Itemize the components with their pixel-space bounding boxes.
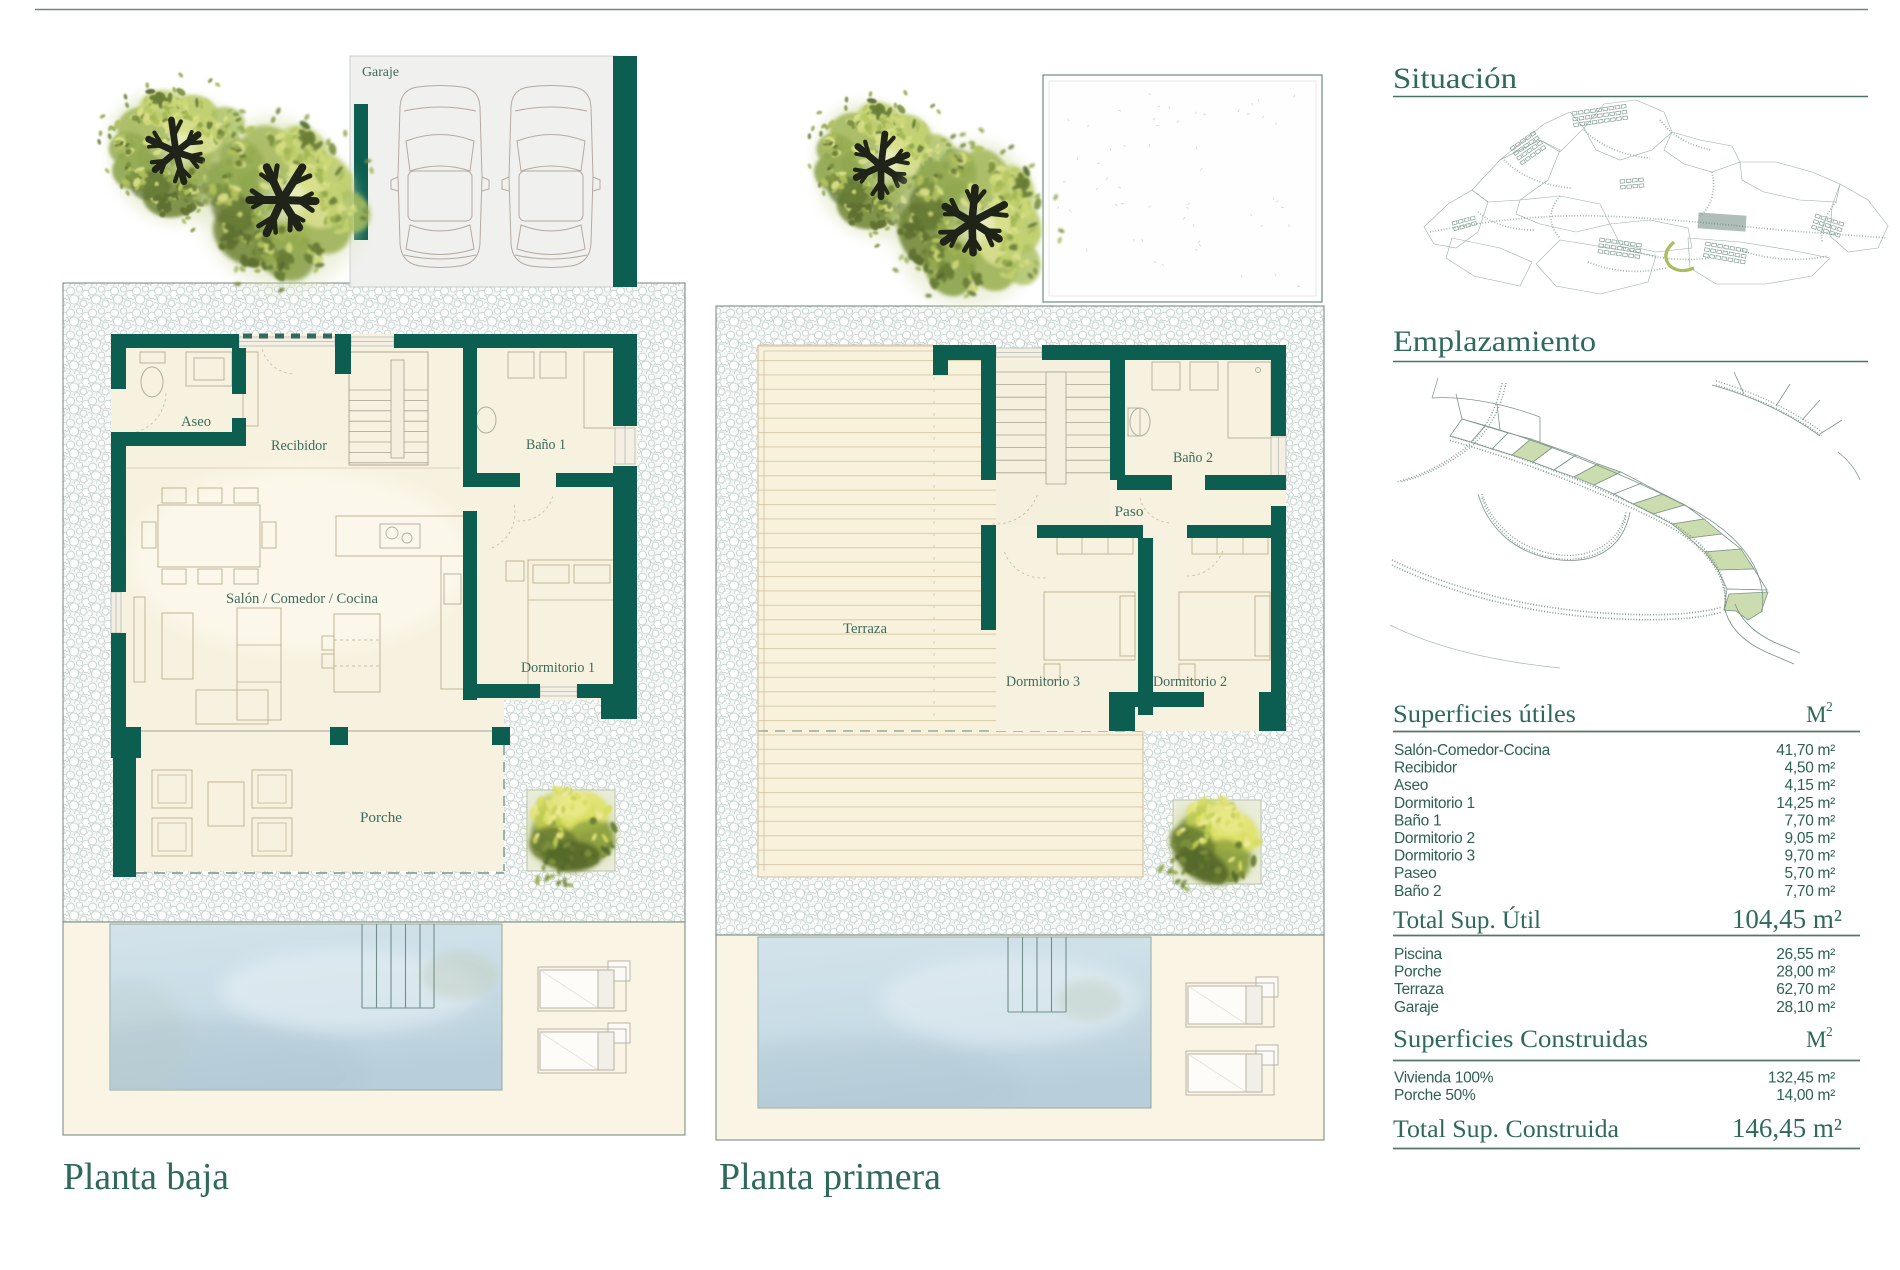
svg-text:Dormitorio 2: Dormitorio 2 [1394, 830, 1475, 847]
svg-text:Dormitorio 3: Dormitorio 3 [1394, 848, 1475, 865]
svg-text:M: M [1806, 1027, 1826, 1052]
svg-text:Dormitorio 1: Dormitorio 1 [1394, 795, 1475, 812]
svg-text:Paso: Paso [1115, 504, 1144, 520]
svg-text:5,70 m²: 5,70 m² [1785, 865, 1836, 882]
svg-text:Dormitorio 1: Dormitorio 1 [521, 660, 595, 676]
svg-text:Recibidor: Recibidor [271, 438, 327, 454]
svg-text:Porche: Porche [360, 810, 402, 826]
svg-text:132,45 m²: 132,45 m² [1768, 1070, 1835, 1087]
svg-text:Planta baja: Planta baja [63, 1156, 229, 1198]
svg-text:7,70 m²: 7,70 m² [1785, 812, 1836, 829]
svg-text:Baño 2: Baño 2 [1173, 450, 1213, 466]
svg-text:M: M [1806, 702, 1826, 727]
svg-text:Baño 2: Baño 2 [1394, 883, 1441, 900]
svg-text:Superficies Construidas: Superficies Construidas [1393, 1026, 1648, 1053]
svg-text:28,10 m²: 28,10 m² [1776, 999, 1835, 1016]
svg-text:Recibidor: Recibidor [1394, 760, 1457, 777]
svg-text:28,00 m²: 28,00 m² [1776, 964, 1835, 981]
svg-text:4,15 m²: 4,15 m² [1785, 777, 1836, 794]
svg-text:Aseo: Aseo [181, 414, 211, 430]
svg-text:146,45 m²: 146,45 m² [1732, 1113, 1842, 1143]
svg-text:4,50 m²: 4,50 m² [1785, 760, 1836, 777]
svg-text:Terraza: Terraza [1394, 981, 1444, 998]
svg-text:Garaje: Garaje [362, 65, 399, 80]
svg-text:Salón-Comedor-Cocina: Salón-Comedor-Cocina [1394, 742, 1551, 759]
svg-text:Dormitorio 3: Dormitorio 3 [1006, 674, 1080, 690]
svg-text:Dormitorio 2: Dormitorio 2 [1153, 674, 1227, 690]
svg-text:2: 2 [1826, 699, 1833, 714]
svg-text:Aseo: Aseo [1394, 777, 1428, 794]
svg-text:Vivienda 100%: Vivienda 100% [1394, 1070, 1494, 1087]
svg-text:41,70 m²: 41,70 m² [1776, 742, 1835, 759]
svg-text:104,45 m²: 104,45 m² [1732, 904, 1842, 934]
svg-text:14,00 m²: 14,00 m² [1776, 1087, 1835, 1104]
svg-text:Situación: Situación [1393, 62, 1517, 95]
svg-text:7,70 m²: 7,70 m² [1785, 883, 1836, 900]
svg-text:Porche: Porche [1394, 964, 1441, 981]
svg-text:2: 2 [1826, 1024, 1833, 1039]
svg-text:Baño 1: Baño 1 [1394, 812, 1441, 829]
svg-text:26,55 m²: 26,55 m² [1776, 946, 1835, 963]
svg-text:Total Sup. Construida: Total Sup. Construida [1393, 1116, 1619, 1143]
svg-text:Baño 1: Baño 1 [526, 437, 566, 453]
svg-text:Piscina: Piscina [1394, 946, 1443, 963]
svg-text:Porche 50%: Porche 50% [1394, 1087, 1476, 1104]
svg-text:14,25 m²: 14,25 m² [1776, 795, 1835, 812]
svg-text:Salón / Comedor / Cocina: Salón / Comedor / Cocina [226, 591, 379, 607]
svg-text:62,70 m²: 62,70 m² [1776, 981, 1835, 998]
svg-text:9,70 m²: 9,70 m² [1785, 848, 1836, 865]
svg-text:Paseo: Paseo [1394, 865, 1436, 882]
svg-text:Total Sup. Útil: Total Sup. Útil [1393, 906, 1541, 934]
svg-text:Emplazamiento: Emplazamiento [1393, 325, 1596, 358]
svg-text:Superficies útiles: Superficies útiles [1393, 701, 1576, 728]
svg-text:Terraza: Terraza [843, 621, 888, 637]
svg-text:9,05 m²: 9,05 m² [1785, 830, 1836, 847]
svg-text:Planta primera: Planta primera [719, 1156, 941, 1198]
svg-text:Garaje: Garaje [1394, 999, 1439, 1016]
